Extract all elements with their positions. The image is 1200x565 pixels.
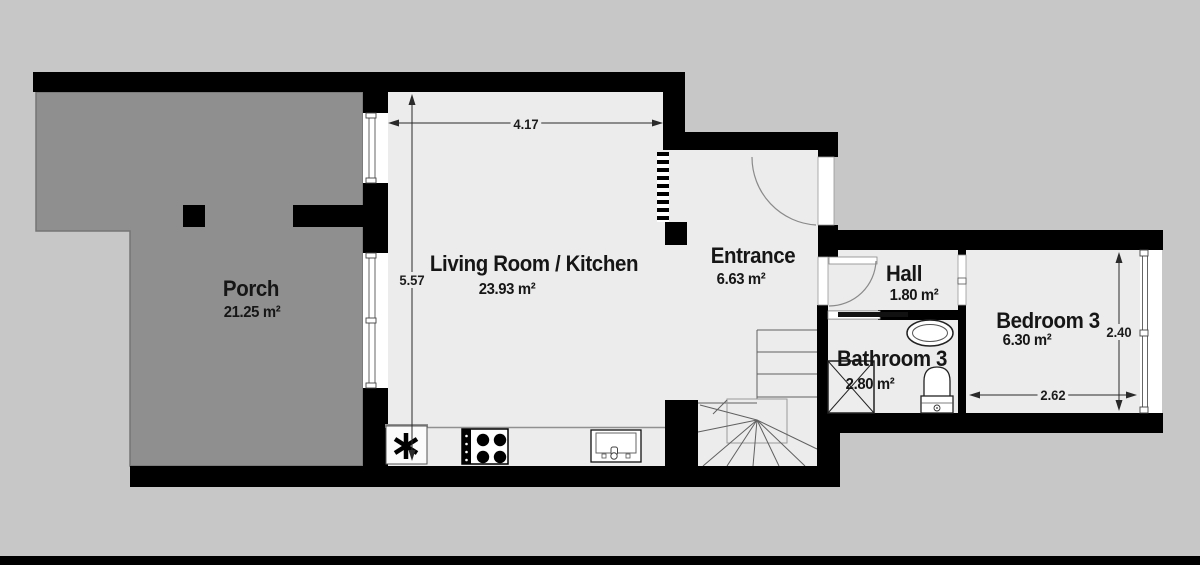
wall-segment (663, 132, 838, 150)
room-label-entrance: Entrance (711, 243, 796, 269)
window-tick (1140, 250, 1148, 256)
wall-segment (363, 388, 388, 466)
hall-door-leaf (829, 257, 877, 264)
wall-segment (818, 150, 838, 157)
wall-segment (130, 466, 823, 487)
stove-burner (494, 451, 506, 463)
floor-plan: Porch 21.25 m² Living Room / Kitchen 23.… (0, 0, 1200, 565)
wall-segment (33, 72, 685, 92)
kitchen-sink (591, 430, 641, 462)
room-area-porch: 21.25 m² (224, 304, 281, 322)
room-label-hall: Hall (886, 261, 922, 287)
wall-segment (293, 205, 388, 227)
wall-segment (665, 400, 698, 466)
room-label-living: Living Room / Kitchen (430, 251, 638, 277)
window-tick (366, 318, 376, 323)
step-hatch-icon (657, 152, 669, 222)
stove-knob (465, 459, 468, 462)
bedroom-window (1140, 250, 1162, 413)
stove-burner (477, 451, 489, 463)
front-door-opening (818, 157, 834, 225)
wall-segment (665, 222, 687, 245)
wall-segment (363, 92, 388, 113)
wall-segment (817, 305, 828, 432)
window-tick (1140, 330, 1148, 336)
window-tick (366, 178, 376, 183)
floors (36, 92, 1140, 466)
living-window-1 (363, 113, 388, 183)
sink-faucet-knob (611, 453, 617, 459)
window-tick (1140, 407, 1148, 413)
stove-knob (465, 443, 468, 446)
living-window-2 (363, 253, 388, 388)
wall-segment (818, 230, 1163, 250)
bottom-border-bar (0, 556, 1200, 565)
room-area-bedroom: 6.30 m² (1003, 332, 1052, 350)
step-hatch-strip (657, 152, 669, 222)
porch-pillar (183, 205, 205, 227)
toilet-flush-dot (936, 407, 938, 409)
room-label-bathroom: Bathroom 3 (837, 346, 947, 372)
room-area-living: 23.93 m² (479, 281, 536, 299)
porch-floor (36, 92, 363, 466)
stove-knob (465, 451, 468, 454)
window-tick (366, 383, 376, 388)
hall-door-opening (818, 257, 828, 305)
dim-label-bedroom-width: 2.62 (1038, 387, 1069, 403)
toilet (921, 367, 953, 413)
stove-burner (477, 434, 489, 446)
sliding-door-panel (838, 312, 908, 317)
floor-plan-drawing (0, 0, 1200, 565)
room-area-entrance: 6.63 m² (717, 271, 766, 289)
stove-burner (494, 434, 506, 446)
window-tick (366, 253, 376, 258)
stove-knob (465, 435, 468, 438)
room-area-bathroom: 2.80 m² (846, 376, 895, 394)
dim-label-bedroom-height: 2.40 (1104, 324, 1135, 340)
window-opening (363, 113, 388, 183)
room-label-porch: Porch (223, 276, 279, 302)
wall-segment (817, 413, 840, 487)
bedroom-door-tick (958, 278, 966, 284)
basin-bowl (907, 320, 953, 346)
wall-segment (817, 413, 1163, 433)
room-area-hall: 1.80 m² (890, 287, 939, 305)
window-tick (366, 113, 376, 118)
dim-label-living-height: 5.57 (397, 272, 428, 288)
dim-label-living-width: 4.17 (511, 116, 542, 132)
stove (462, 429, 508, 464)
room-label-bedroom: Bedroom 3 (996, 308, 1100, 334)
